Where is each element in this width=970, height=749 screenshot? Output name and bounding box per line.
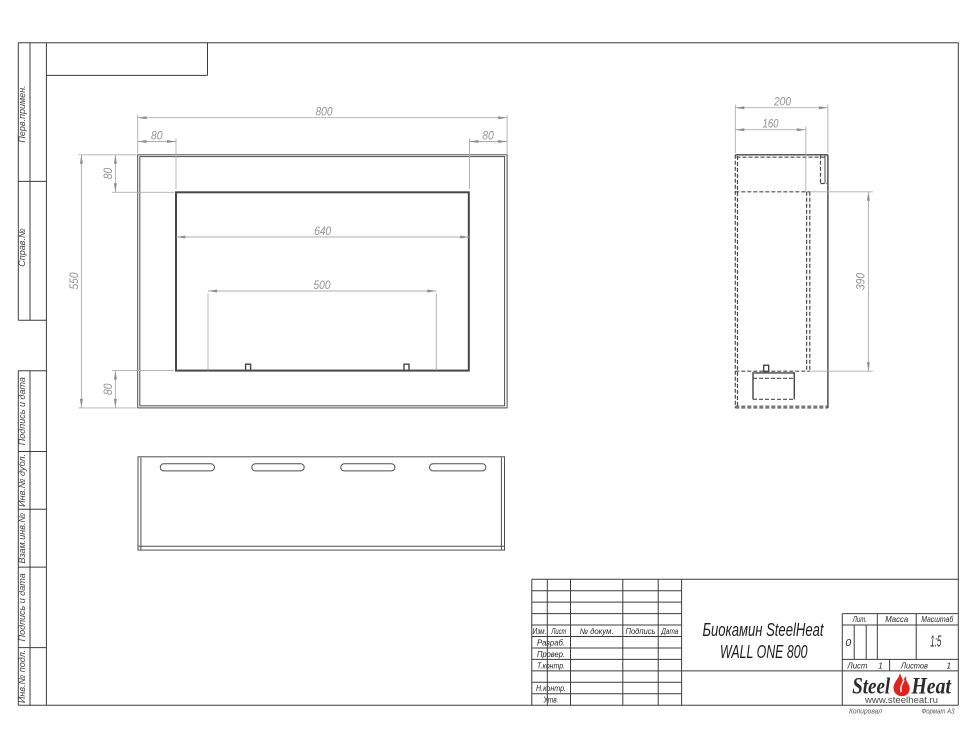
svg-text:Н.контр.: Н.контр. <box>536 684 566 693</box>
svg-text:80: 80 <box>103 383 115 395</box>
svg-text:1: 1 <box>878 661 883 671</box>
svg-text:Масса: Масса <box>885 615 909 624</box>
svg-text:640: 640 <box>314 226 332 238</box>
svg-text:Подпись: Подпись <box>626 627 656 636</box>
svg-text:Масштаб: Масштаб <box>921 615 953 624</box>
svg-text:0: 0 <box>845 637 851 649</box>
svg-text:Листов: Листов <box>900 661 928 671</box>
svg-text:Провер.: Провер. <box>537 650 565 659</box>
svg-text:Изм.: Изм. <box>533 627 547 636</box>
svg-text:Т.контр.: Т.контр. <box>537 661 565 670</box>
svg-text:800: 800 <box>316 107 334 119</box>
svg-text:Перв.примен.: Перв.примен. <box>17 85 27 142</box>
svg-text:200: 200 <box>773 97 791 109</box>
svg-text:1: 1 <box>946 661 951 671</box>
svg-text:Лист: Лист <box>551 627 567 636</box>
svg-text:1:5: 1:5 <box>930 634 941 651</box>
svg-text:Дата: Дата <box>661 627 679 636</box>
svg-text:80: 80 <box>151 130 163 142</box>
svg-text:Инв.№ подл.: Инв.№ подл. <box>17 650 27 703</box>
svg-text:Подпись и дата: Подпись и дата <box>17 377 27 445</box>
svg-text:Справ.№: Справ.№ <box>17 228 27 267</box>
svg-text:160: 160 <box>763 119 780 131</box>
svg-text:Подпись и дата: Подпись и дата <box>17 573 27 641</box>
svg-text:Биокамин SteelHeat: Биокамин SteelHeat <box>703 620 825 640</box>
svg-text:550: 550 <box>69 272 81 290</box>
svg-text:Взам.инв.№: Взам.инв.№ <box>17 513 27 564</box>
svg-text:390: 390 <box>856 272 868 290</box>
svg-text:Разраб.: Разраб. <box>537 638 565 647</box>
svg-text:Утв.: Утв. <box>543 696 559 705</box>
svg-text:Формат А3: Формат А3 <box>922 709 955 716</box>
svg-text:Инв.№ дубл.: Инв.№ дубл. <box>17 454 27 507</box>
svg-text:500: 500 <box>314 280 332 292</box>
svg-text:WALL ONE 800: WALL ONE 800 <box>720 642 808 662</box>
svg-text:Копировал: Копировал <box>849 709 882 716</box>
svg-text:№ докум.: № докум. <box>580 627 614 636</box>
svg-text:80: 80 <box>103 167 115 179</box>
svg-text:Лит.: Лит. <box>852 615 867 624</box>
svg-text:www.steelheat.ru: www.steelheat.ru <box>864 695 938 706</box>
svg-text:80: 80 <box>482 130 494 142</box>
svg-text:Лист: Лист <box>846 661 867 671</box>
